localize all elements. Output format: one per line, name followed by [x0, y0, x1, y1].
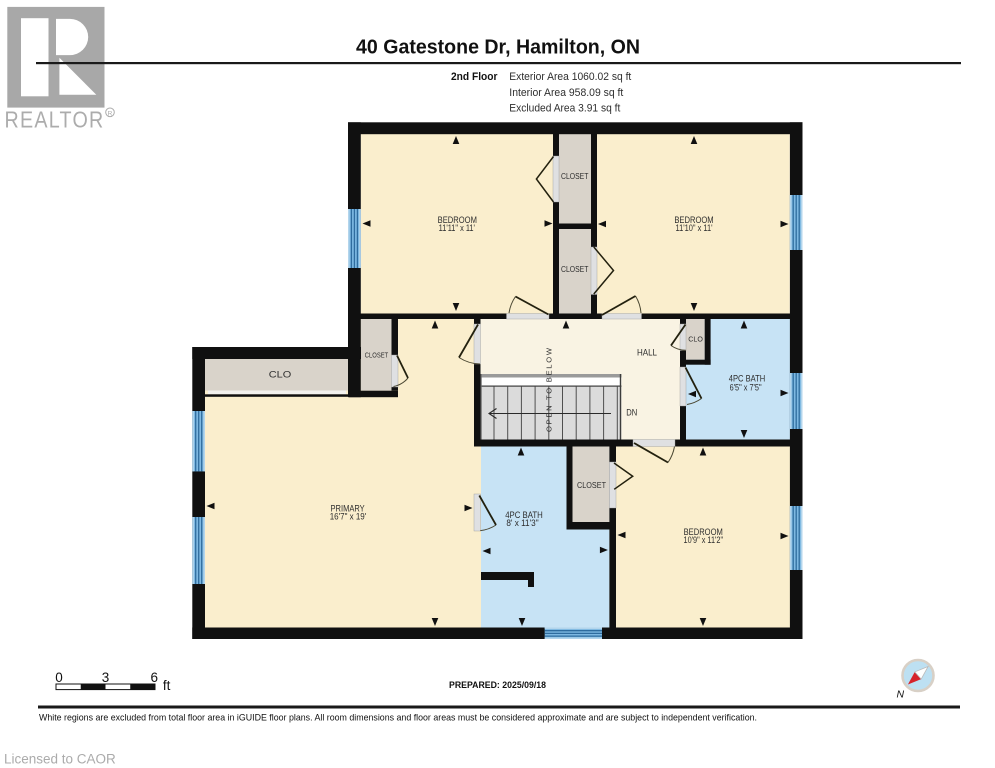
- svg-text:0: 0: [55, 670, 63, 685]
- svg-text:HALL: HALL: [637, 347, 657, 357]
- svg-text:R: R: [108, 110, 113, 117]
- svg-text:CLO: CLO: [688, 334, 703, 343]
- svg-text:PREPARED: 2025/09/18: PREPARED: 2025/09/18: [449, 680, 546, 690]
- svg-text:Licensed to CAOR: Licensed to CAOR: [4, 752, 116, 767]
- svg-text:11'11" x 11': 11'11" x 11': [439, 223, 476, 233]
- svg-text:2nd Floor: 2nd Floor: [451, 71, 498, 83]
- svg-text:REALTOR: REALTOR: [5, 107, 105, 133]
- svg-text:3: 3: [102, 670, 110, 685]
- svg-text:8' x 11'3": 8' x 11'3": [506, 518, 538, 528]
- svg-text:White regions are excluded fro: White regions are excluded from total fl…: [39, 713, 757, 723]
- svg-text:N: N: [897, 689, 905, 701]
- svg-text:Excluded Area 3.91 sq ft: Excluded Area 3.91 sq ft: [509, 102, 620, 114]
- svg-text:10'9" x 11'2": 10'9" x 11'2": [684, 535, 724, 545]
- svg-text:6'5" x 7'5": 6'5" x 7'5": [730, 383, 762, 393]
- svg-text:DN: DN: [626, 408, 637, 418]
- svg-text:CLOSET: CLOSET: [577, 481, 606, 490]
- svg-text:Interior Area 958.09 sq ft: Interior Area 958.09 sq ft: [509, 87, 623, 99]
- svg-text:6: 6: [151, 670, 159, 685]
- svg-text:Exterior Area 1060.02 sq ft: Exterior Area 1060.02 sq ft: [509, 71, 631, 83]
- svg-text:16'7" x 19': 16'7" x 19': [330, 512, 367, 522]
- svg-text:CLOSET: CLOSET: [561, 172, 588, 181]
- svg-text:11'10" x 11': 11'10" x 11': [676, 223, 713, 233]
- svg-text:CLOSET: CLOSET: [365, 353, 389, 360]
- svg-text:CLOSET: CLOSET: [561, 265, 588, 274]
- svg-text:ft: ft: [163, 678, 171, 693]
- svg-text:CLO: CLO: [269, 369, 292, 379]
- svg-text:40 Gatestone Dr, Hamilton, ON: 40 Gatestone Dr, Hamilton, ON: [356, 36, 640, 59]
